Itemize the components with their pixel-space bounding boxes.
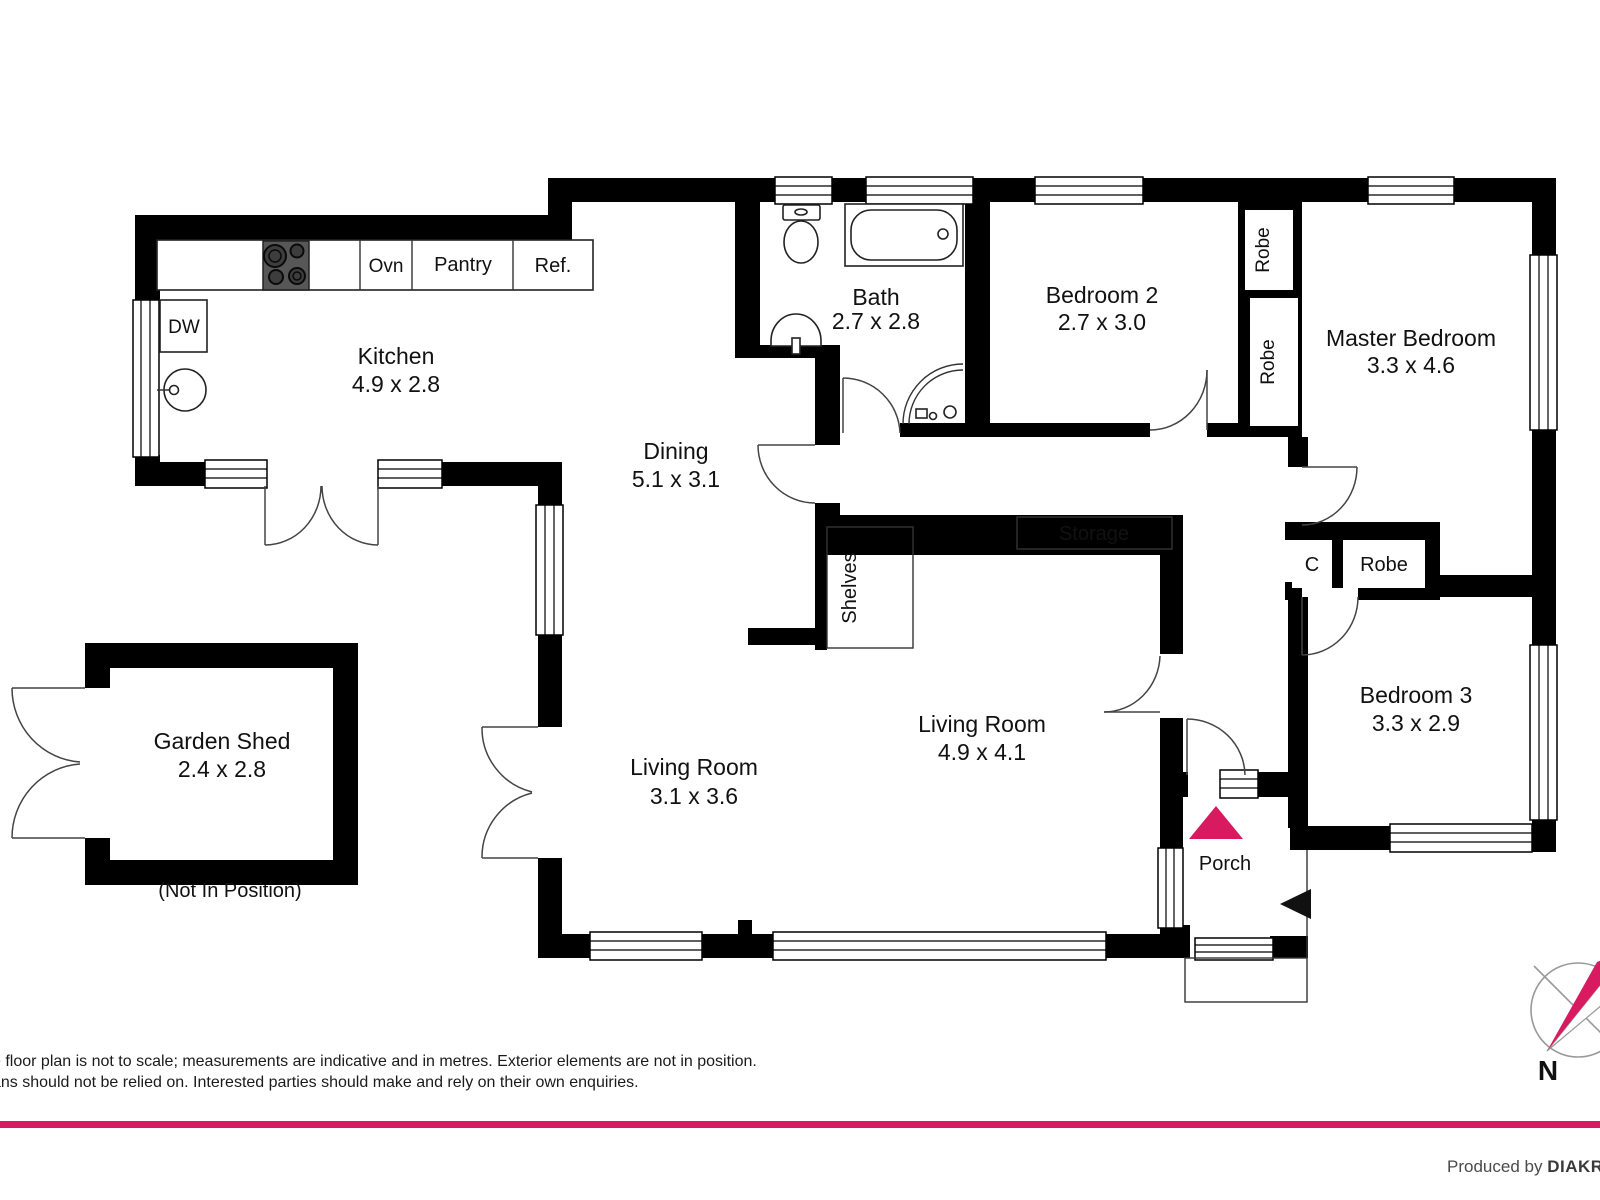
door [1104, 656, 1160, 712]
room-label-bath: Bath [852, 284, 899, 310]
door [1150, 370, 1207, 430]
window [773, 932, 1106, 960]
room-label-shed: Garden Shed [154, 728, 291, 754]
double-door [265, 486, 378, 545]
window [205, 460, 267, 488]
disclaimer-line-2: ans should not be relied on. Interested … [0, 1074, 639, 1091]
room-label-living2: Living Room [918, 711, 1046, 737]
door [843, 378, 900, 433]
label-storage: Storage [1059, 523, 1129, 545]
label-robe-3: Robe [1360, 554, 1408, 576]
cooktop-icon [263, 241, 309, 290]
shed-note: (Not In Position) [158, 880, 301, 902]
floor-plan-page: N Kitchen 4.9 x 2.8 Bath 2.7 x 2.8 Bedro… [0, 0, 1600, 1200]
room-dims-kitchen: 4.9 x 2.8 [352, 371, 440, 397]
entry-arrow-icon [1280, 889, 1311, 919]
closet-outlines [827, 517, 1307, 1002]
room-label-bedroom2: Bedroom 2 [1046, 282, 1159, 308]
label-robe-2: Robe [1258, 339, 1279, 384]
room-label-master: Master Bedroom [1326, 325, 1496, 351]
door [1187, 719, 1245, 775]
room-dims-bedroom2: 2.7 x 3.0 [1058, 309, 1146, 335]
label-robe-1: Robe [1253, 227, 1274, 272]
window [1530, 645, 1557, 820]
disclaimer-line-1: e floor plan is not to scale; measuremen… [0, 1053, 757, 1070]
door [758, 445, 815, 503]
window [1035, 177, 1143, 204]
produced-by-text: Produced by [1447, 1157, 1547, 1176]
window [1530, 255, 1557, 430]
porch-step [1185, 958, 1307, 1002]
window [590, 932, 702, 960]
toilet-icon [783, 205, 820, 263]
double-door [482, 727, 538, 858]
window [1158, 848, 1183, 928]
room-dims-bedroom3: 3.3 x 2.9 [1372, 710, 1460, 736]
room-label-bedroom3: Bedroom 3 [1360, 682, 1473, 708]
label-closet: C [1305, 554, 1319, 576]
window [1195, 938, 1273, 960]
label-oven: Ovn [369, 256, 404, 277]
window [775, 177, 832, 204]
room-dims-living1: 3.1 x 3.6 [650, 783, 738, 809]
room-label-kitchen: Kitchen [358, 343, 435, 369]
room-dims-master: 3.3 x 4.6 [1367, 352, 1455, 378]
floor-plan: N Kitchen 4.9 x 2.8 Bath 2.7 x 2.8 Bedro… [0, 0, 1600, 1200]
label-shelves: Shelves [839, 552, 861, 623]
window [1390, 824, 1532, 852]
door [1302, 597, 1358, 655]
footer: e floor plan is not to scale; measuremen… [0, 1053, 1600, 1176]
room-dims-shed: 2.4 x 2.8 [178, 756, 266, 782]
compass-icon: N [1531, 949, 1600, 1086]
room-dims-bath: 2.7 x 2.8 [832, 308, 920, 334]
shower-icon [903, 364, 963, 424]
room-label-living1: Living Room [630, 754, 758, 780]
north-triangle-icon [1189, 806, 1243, 839]
compass-north-label: N [1538, 1055, 1558, 1086]
room-label-porch: Porch [1199, 853, 1251, 875]
window [1220, 770, 1258, 798]
room-label-dining: Dining [643, 438, 708, 464]
label-fridge: Ref. [535, 255, 572, 277]
kitchen-sink-icon [157, 369, 206, 411]
window [1368, 177, 1454, 204]
window [536, 505, 563, 635]
double-door [12, 688, 85, 838]
room-dims-dining: 5.1 x 3.1 [632, 466, 720, 492]
room-dims-living2: 4.9 x 4.1 [938, 739, 1026, 765]
window [133, 300, 159, 457]
label-pantry: Pantry [434, 254, 492, 276]
window [378, 460, 442, 488]
produced-by: Produced by DIAKR [1447, 1157, 1600, 1176]
window [866, 177, 973, 204]
accent-divider [0, 1121, 1600, 1128]
door [1302, 467, 1357, 525]
brand-name: DIAKR [1547, 1157, 1600, 1176]
label-dishwasher: DW [168, 317, 200, 338]
bathtub-icon [845, 204, 963, 266]
